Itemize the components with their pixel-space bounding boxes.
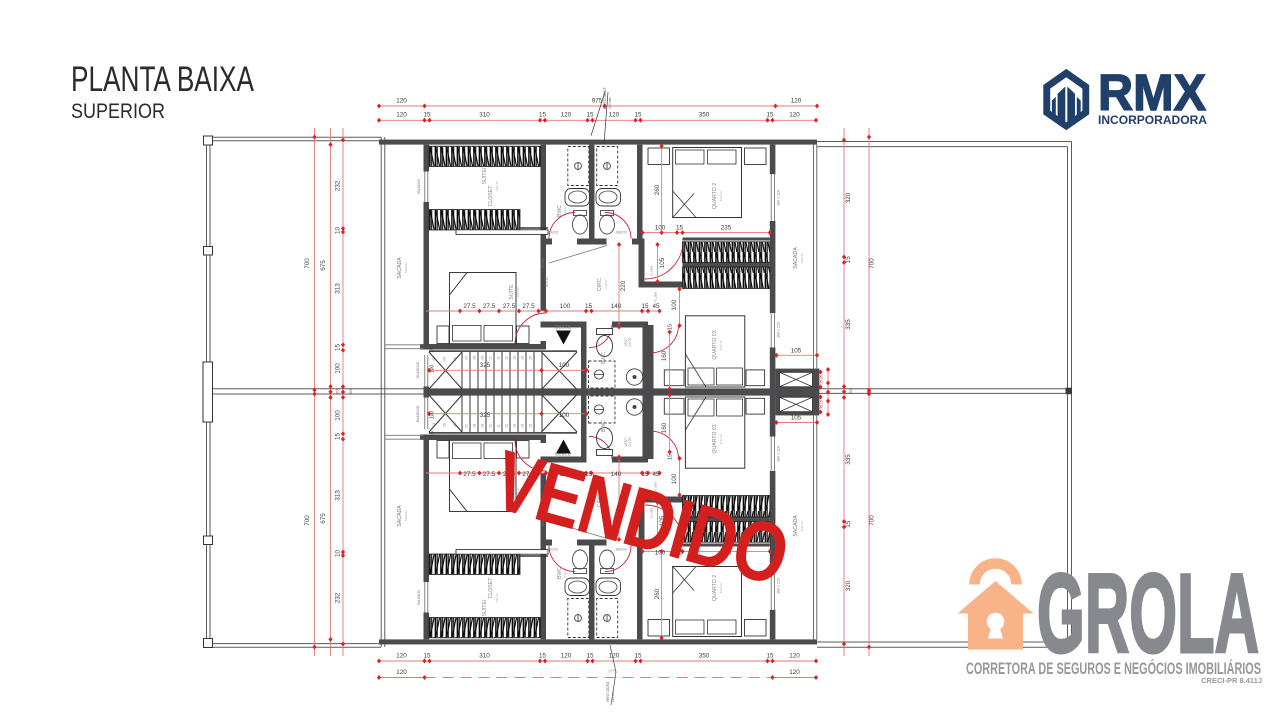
svg-text:100: 100 (560, 303, 571, 310)
svg-text:335: 335 (845, 454, 852, 465)
svg-text:310: 310 (479, 112, 490, 119)
svg-text:120: 120 (396, 653, 407, 660)
svg-text:160 x 210: 160 x 210 (777, 190, 781, 206)
svg-text:12: 12 (505, 356, 509, 360)
svg-text:3,10 m²: 3,10 m² (563, 568, 567, 578)
svg-text:6,08 m²: 6,08 m² (404, 511, 408, 521)
svg-text:15: 15 (430, 431, 436, 437)
svg-text:8,46 m²: 8,46 m² (800, 253, 804, 263)
svg-text:700: 700 (869, 258, 876, 269)
svg-text:100: 100 (559, 412, 570, 419)
svg-text:10: 10 (335, 227, 342, 235)
svg-text:15: 15 (423, 112, 431, 119)
svg-text:15: 15 (668, 324, 674, 330)
svg-text:QUARTO 03: QUARTO 03 (712, 330, 718, 359)
svg-text:120: 120 (396, 98, 407, 105)
svg-text:320: 320 (845, 580, 852, 591)
svg-text:GROLA: GROLA (1037, 551, 1259, 676)
svg-text:13: 13 (513, 424, 517, 428)
svg-text:20: 20 (848, 389, 853, 394)
svg-text:100: 100 (430, 411, 436, 420)
svg-text:CIRC.: CIRC. (597, 277, 603, 291)
svg-text:160: 160 (661, 350, 668, 361)
svg-text:14: 14 (521, 424, 525, 428)
svg-text:15 35: 15 35 (820, 375, 824, 384)
svg-text:15: 15 (676, 224, 684, 231)
svg-text:7,01 m²: 7,01 m² (495, 181, 499, 191)
svg-text:15: 15 (634, 112, 642, 119)
svg-text:15: 15 (539, 112, 547, 119)
svg-text:700: 700 (304, 515, 311, 526)
svg-text:15: 15 (845, 256, 852, 264)
svg-text:DUTO: DUTO (628, 437, 632, 446)
svg-text:120: 120 (396, 112, 407, 119)
svg-text:100 cm²: 100 cm² (608, 96, 612, 109)
svg-text:105: 105 (791, 347, 802, 354)
svg-text:11: 11 (497, 424, 501, 428)
svg-text:CRECI-PR 8.411J: CRECI-PR 8.411J (1201, 676, 1262, 685)
svg-text:15: 15 (335, 433, 342, 441)
svg-text:700: 700 (869, 515, 876, 526)
svg-text:260: 260 (654, 184, 661, 195)
svg-text:120: 120 (396, 669, 407, 676)
svg-text:09: 09 (481, 424, 485, 428)
svg-text:160: 160 (661, 422, 668, 433)
svg-text:80x160/100: 80x160/100 (416, 405, 420, 422)
svg-text:27.5: 27.5 (522, 303, 535, 310)
svg-text:15: 15 (641, 303, 649, 310)
svg-text:SUITE: SUITE (509, 284, 515, 300)
svg-text:0 L2/08: 0 L2/08 (650, 266, 654, 276)
svg-text:120: 120 (609, 653, 620, 660)
svg-text:9,01 m²: 9,01 m² (516, 287, 520, 297)
svg-text:232: 232 (335, 180, 342, 191)
svg-text:120: 120 (789, 653, 800, 660)
svg-text:3,18 m²: 3,18 m² (604, 279, 608, 289)
svg-text:10: 10 (335, 550, 342, 558)
svg-text:260: 260 (654, 588, 661, 599)
svg-text:35 15: 35 15 (820, 400, 824, 409)
svg-text:80x160/100: 80x160/100 (416, 361, 420, 378)
svg-text:15: 15 (529, 424, 533, 428)
svg-text:04: 04 (432, 423, 436, 427)
svg-text:8,46 m²: 8,46 m² (800, 521, 804, 531)
svg-text:8,31 m²: 8,31 m² (719, 340, 723, 350)
svg-text:SUITE/: SUITE/ (482, 599, 488, 616)
svg-text:313: 313 (335, 283, 342, 294)
svg-text:BWC: BWC (601, 352, 607, 364)
svg-text:15: 15 (335, 344, 342, 352)
svg-text:232: 232 (335, 592, 342, 603)
svg-text:BWC: BWC (601, 420, 607, 432)
svg-text:80x100/40: 80x100/40 (417, 179, 421, 194)
svg-text:15: 15 (430, 347, 436, 353)
svg-text:15: 15 (634, 653, 642, 660)
svg-text:04: 04 (432, 357, 436, 361)
svg-text:15: 15 (423, 653, 431, 660)
svg-text:15: 15 (585, 303, 593, 310)
svg-text:QUARTO 03: QUARTO 03 (712, 424, 718, 453)
svg-text:120: 120 (791, 98, 802, 105)
svg-text:100: 100 (559, 362, 570, 369)
svg-text:13: 13 (513, 356, 517, 360)
svg-text:100: 100 (430, 365, 436, 374)
svg-text:160 x 210: 160 x 210 (777, 446, 781, 462)
svg-text:27.5: 27.5 (483, 471, 496, 478)
svg-text:120: 120 (789, 112, 800, 119)
svg-text:6,08 m²: 6,08 m² (404, 263, 408, 273)
svg-text:310: 310 (479, 653, 490, 660)
svg-text:15: 15 (539, 653, 547, 660)
svg-text:DESCE: DESCE (555, 325, 571, 330)
svg-text:100: 100 (335, 363, 342, 374)
svg-text:27.5: 27.5 (463, 303, 476, 310)
svg-text:325: 325 (480, 412, 491, 419)
svg-text:08: 08 (473, 356, 477, 360)
svg-text:QUARTO 2: QUARTO 2 (712, 183, 718, 209)
svg-text:SACADA: SACADA (793, 247, 799, 269)
svg-text:SUPERIOR: SUPERIOR (71, 100, 165, 123)
svg-text:8,33 m²: 8,33 m² (719, 191, 723, 201)
svg-text:320: 320 (845, 192, 852, 203)
svg-text:975: 975 (608, 669, 616, 674)
svg-text:10: 10 (489, 424, 493, 428)
svg-text:220: 220 (620, 280, 627, 291)
svg-text:07: 07 (465, 424, 469, 428)
svg-text:SACADA: SACADA (397, 505, 403, 527)
svg-text:15: 15 (529, 356, 533, 360)
svg-text:DUTO VENT.: DUTO VENT. (603, 86, 607, 109)
svg-text:27.5: 27.5 (503, 303, 516, 310)
svg-text:45: 45 (652, 303, 660, 310)
svg-text:675: 675 (320, 513, 327, 524)
svg-text:INCORPORADORA: INCORPORADORA (1098, 113, 1207, 127)
svg-text:09: 09 (481, 356, 485, 360)
svg-text:PLANTA BAIXA: PLANTA BAIXA (71, 59, 254, 99)
svg-text:CLOSET: CLOSET (488, 577, 494, 599)
svg-text:15: 15 (586, 112, 594, 119)
svg-text:80x210: 80x210 (548, 548, 559, 552)
svg-text:10: 10 (489, 356, 493, 360)
svg-text:7,01 m²: 7,01 m² (495, 593, 499, 603)
svg-text:700: 700 (304, 258, 311, 269)
svg-text:27.5: 27.5 (483, 303, 496, 310)
svg-text:27.5: 27.5 (463, 471, 476, 478)
svg-text:160 x 210: 160 x 210 (777, 322, 781, 338)
svg-text:120: 120 (561, 653, 572, 660)
svg-text:11: 11 (497, 356, 501, 360)
svg-text:120: 120 (789, 669, 800, 676)
svg-text:05: 05 (443, 423, 447, 427)
svg-text:313: 313 (335, 490, 342, 501)
svg-text:15: 15 (668, 454, 674, 460)
svg-text:CLOSET: CLOSET (488, 185, 494, 207)
svg-text:120: 120 (561, 112, 572, 119)
svg-text:335: 335 (845, 319, 852, 330)
svg-text:350: 350 (699, 653, 710, 660)
svg-text:12: 12 (505, 424, 509, 428)
svg-text:8,31 m²: 8,31 m² (719, 434, 723, 444)
svg-text:105: 105 (791, 415, 802, 422)
svg-text:325: 325 (480, 362, 491, 369)
svg-text:14: 14 (521, 356, 525, 360)
svg-text:120: 120 (609, 112, 620, 119)
svg-text:105: 105 (659, 257, 666, 268)
svg-text:20: 20 (348, 389, 353, 394)
svg-text:100: 100 (335, 410, 342, 421)
svg-text:06: 06 (453, 423, 457, 427)
svg-text:350: 350 (699, 112, 710, 119)
svg-text:SUITE/: SUITE/ (482, 167, 488, 184)
svg-text:235: 235 (721, 224, 732, 231)
svg-text:675: 675 (320, 260, 327, 271)
svg-text:15: 15 (766, 112, 774, 119)
svg-text:08: 08 (473, 424, 477, 428)
svg-text:80x210: 80x210 (616, 231, 627, 235)
svg-text:DUTO: DUTO (628, 337, 632, 346)
svg-text:06: 06 (453, 357, 457, 361)
svg-text:100: 100 (671, 299, 678, 310)
svg-text:3,10 m²: 3,10 m² (563, 206, 567, 216)
svg-text:100: 100 (655, 224, 666, 231)
svg-text:05: 05 (443, 357, 447, 361)
svg-text:VENT. DUTO: VENT. DUTO (606, 682, 610, 702)
svg-text:140: 140 (611, 303, 622, 310)
svg-text:80x100/40: 80x100/40 (417, 590, 421, 605)
svg-text:15: 15 (766, 653, 774, 660)
svg-text:80x210: 80x210 (548, 231, 559, 235)
svg-text:15: 15 (586, 653, 594, 660)
svg-text:15: 15 (845, 520, 852, 528)
svg-text:SACADA: SACADA (397, 257, 403, 279)
svg-text:0 L2/08: 0 L2/08 (541, 258, 545, 268)
svg-text:60x210: 60x210 (545, 277, 549, 288)
svg-text:07: 07 (465, 356, 469, 360)
svg-text:20: 20 (335, 389, 340, 394)
svg-text:0 L2/08: 0 L2/08 (654, 292, 658, 302)
